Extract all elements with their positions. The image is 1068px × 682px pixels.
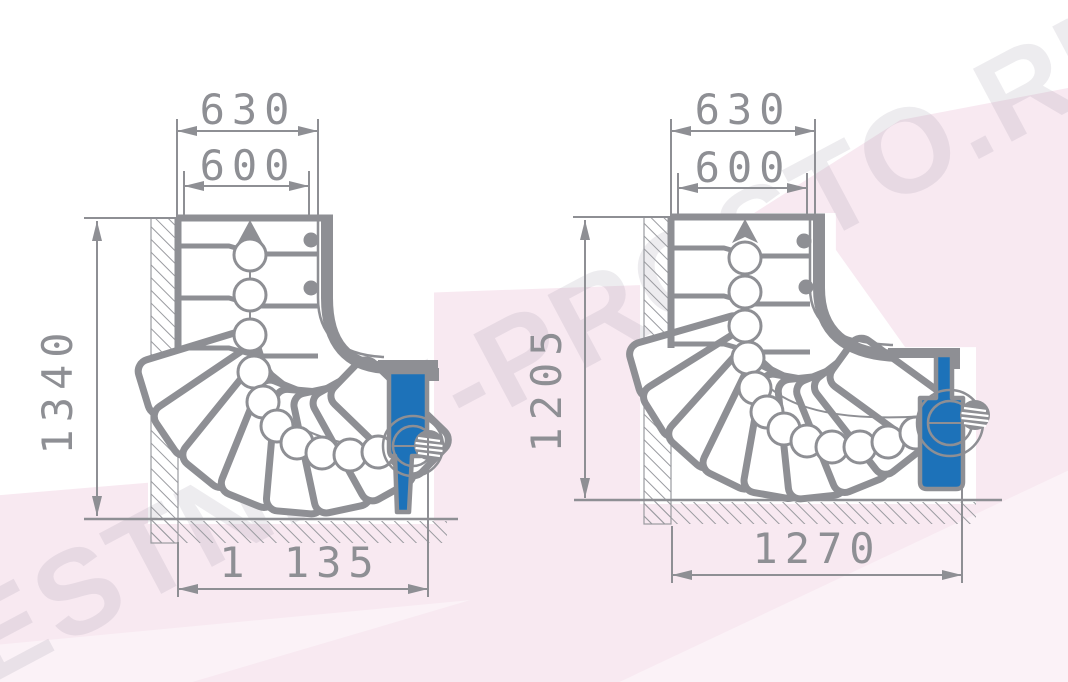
dim-label-width-total: 1 135 <box>219 538 380 587</box>
dim-arrow <box>92 221 102 241</box>
dim-label-width-top: 630 <box>695 85 792 134</box>
dim-label-width-tread: 600 <box>200 141 297 190</box>
center-column-module <box>234 319 266 351</box>
stair-diagram-left: 63060013401 135 <box>33 85 458 597</box>
center-column-module <box>234 239 266 271</box>
dim-label-height-total: 1205 <box>522 323 571 452</box>
dim-arrow <box>580 478 590 498</box>
dim-label-height-total: 1340 <box>33 325 82 454</box>
center-column-module <box>238 356 270 388</box>
baluster-node <box>797 234 812 249</box>
dim-arrow <box>178 584 198 594</box>
dim-arrow <box>298 126 318 136</box>
center-column-module <box>729 310 761 342</box>
dim-arrow <box>671 126 691 136</box>
dim-label-width-tread: 600 <box>695 143 792 192</box>
dim-arrow <box>942 570 962 580</box>
stairs-technical-drawing: 63060013401 135 63060012051270 <box>0 0 1068 682</box>
center-column-module <box>729 242 761 274</box>
dim-arrow <box>408 584 428 594</box>
baluster-node <box>304 281 319 296</box>
center-column-module <box>732 342 764 374</box>
dim-label-width-top: 630 <box>200 85 297 134</box>
baluster-node <box>304 233 319 248</box>
dim-arrow <box>92 496 102 516</box>
outer-stringer <box>327 218 388 368</box>
dim-arrow <box>795 126 815 136</box>
bracket-tab <box>428 368 439 381</box>
dim-arrow <box>177 126 197 136</box>
staircase-drawing-page: LESTNICY-PROSTO.RU 63060013401 135 63060… <box>0 0 1068 682</box>
dim-arrow <box>672 570 692 580</box>
center-column-module <box>234 279 266 311</box>
dim-arrow <box>580 220 590 240</box>
baluster-node <box>799 280 814 295</box>
center-column-module <box>844 431 876 463</box>
floor-hatch <box>644 502 976 524</box>
center-column-module <box>729 276 761 308</box>
stair-diagram-right: 63060012051270 <box>522 85 1002 583</box>
dim-label-width-total: 1270 <box>752 524 881 573</box>
